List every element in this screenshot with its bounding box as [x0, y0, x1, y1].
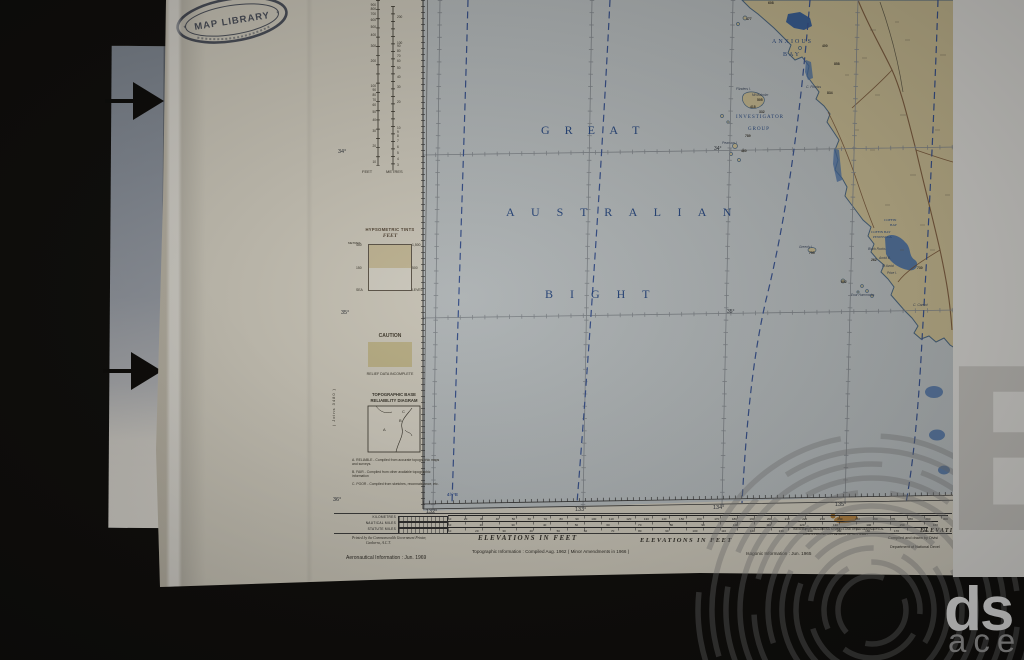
sea-label: INVESTIGATOR: [736, 115, 784, 120]
metres-tick: 50: [397, 66, 421, 70]
sea-label: BAY: [890, 224, 897, 228]
metres-tick: 8: [397, 134, 421, 138]
sea-label: PENINSULA: [873, 236, 892, 239]
heights-scale-lines: [378, 0, 393, 170]
isogonic-value-label: 4½°E: [447, 493, 458, 498]
feet-tick: 70: [352, 98, 376, 102]
place-label: Greenly I.: [799, 246, 813, 249]
aeronautical-info: Aeronautical Information : Jun. 1969: [346, 555, 426, 561]
spot-height: 460: [741, 150, 747, 153]
spot-height: 400: [822, 45, 828, 48]
degree-label: 35°: [341, 311, 349, 317]
photo-of-map: { "stamp": { "text": "MAP LIBRARY", "sid…: [0, 0, 1024, 660]
hypso-right-0: 1,500: [412, 243, 421, 247]
scalebar-nm-label: NAUTICAL MILES: [336, 521, 396, 525]
feet-tick: 300: [352, 44, 376, 48]
metres-tick: 40: [397, 75, 421, 79]
place-label: C. Carnot: [913, 304, 928, 307]
feet-tick: 90: [352, 88, 376, 92]
metres-tick: 6: [397, 145, 421, 149]
degree-label: 34°: [714, 147, 722, 152]
feet-tick: 30: [352, 129, 376, 133]
library-stamp: MAP LIBRARY * *: [174, 0, 289, 49]
reliability-title2: RELIABILITY DIAGRAM: [350, 398, 438, 403]
scalebar-sm-label: STATUTE MILES: [336, 527, 396, 531]
metres-tick: 20: [397, 100, 421, 104]
hypso-left-2: SEA: [356, 288, 363, 292]
arrow-icon: [105, 99, 135, 103]
reliability-entry: C. POOR - Compiled from sketches, reconn…: [352, 482, 440, 486]
watermark-band: B: [953, 0, 1024, 577]
feet-tick: 400: [352, 33, 376, 37]
scalebar-rule: [334, 513, 952, 514]
degree-label: 35°: [727, 310, 735, 315]
hypso-left-1: 150: [356, 266, 362, 270]
metres-tick: 5: [397, 151, 421, 155]
sea-label: COFFIN: [884, 219, 896, 223]
watermark-text-ace: ace: [948, 622, 1022, 660]
feet-tick: 60: [352, 103, 376, 107]
arrow-icon: [103, 369, 133, 373]
place-label: Pearson I.: [722, 142, 737, 145]
metres-tick: 60: [397, 59, 421, 63]
place-label: Avoid B.: [879, 257, 891, 260]
metres-tick: 3: [397, 163, 421, 167]
hypso-right-1: 500: [412, 266, 418, 270]
hypso-left-0: 450: [356, 243, 362, 247]
sea-label: COFFIN BAY: [871, 231, 891, 234]
place-label: Black Rocks: [868, 248, 886, 251]
caution-note: RELIEF DATA INCOMPLETE: [352, 372, 428, 376]
feet-tick: 20: [352, 144, 376, 148]
printer-line1: Printed by the Commonwealth Government P…: [352, 536, 426, 540]
feet-label: FEET: [362, 169, 372, 174]
stamp-star: *: [276, 11, 280, 18]
metres-tick: 7: [397, 139, 421, 143]
feet-tick: 10: [352, 160, 376, 164]
info-note1: INFORMATION REGARDING SYMBOLS AND OTHER …: [793, 527, 884, 531]
isogonic-info: Isogonic Information : Jun. 1965: [746, 551, 811, 556]
scalebar-tick: 160: [933, 523, 938, 527]
arrow-icon: [131, 352, 162, 390]
hypsometric-band-upper: [368, 244, 412, 270]
spot-height: 834: [827, 92, 833, 95]
metres-tick: 70: [397, 54, 421, 58]
sea-label: GROUP: [748, 127, 770, 132]
place-label: Flinders I.: [736, 88, 751, 91]
feet-tick: 50: [352, 110, 376, 114]
place-label: Pt Avoid: [882, 265, 894, 268]
spot-height: 418: [750, 106, 756, 109]
spot-height: 477: [746, 18, 752, 21]
place-label: Mt Malcolm: [752, 94, 768, 97]
feet-tick: 500: [352, 25, 376, 29]
spot-height: 505: [757, 99, 763, 102]
stamp-text: MAP LIBRARY: [194, 10, 271, 33]
heights-scale-feet: 9008007006005004003002001009080706050403…: [352, 0, 376, 175]
place-label: Four Hummocks: [851, 294, 874, 297]
sea-label: BAY: [783, 52, 801, 58]
degree-label: 34°: [338, 150, 346, 156]
compiled-line2: Department of National Devel: [890, 545, 940, 549]
scalebar-tick: 300: [943, 517, 948, 521]
sea-label: A U S T R A L I A N: [506, 206, 738, 218]
reliability-diagram-art: [368, 406, 420, 452]
place-label: C. Finniss: [806, 86, 821, 89]
spot-height: 262: [871, 259, 877, 262]
degree-label: 36°: [333, 498, 341, 504]
degree-label: 135°: [835, 503, 846, 509]
reliability-letter: B: [399, 419, 402, 423]
metres-tick: 90: [397, 44, 421, 48]
joins-note: ( Joins 3480 ): [331, 388, 336, 426]
compiled-line1: Compiled and drawn by Divisi: [888, 536, 938, 540]
feet-tick: 600: [352, 18, 376, 22]
degree-label: 134°: [713, 506, 724, 512]
reliability-entry: B. FAIR - Compiled from other available …: [352, 470, 440, 479]
arrow-icon: [133, 82, 164, 120]
scalebar-km-label: KILOMETRES: [336, 515, 396, 519]
caution-title: CAUTION: [360, 333, 420, 339]
reliability-letter: C: [402, 410, 405, 414]
feet-tick: 700: [352, 12, 376, 16]
reliability-letter: A: [383, 428, 386, 432]
stamp-star: *: [183, 25, 187, 32]
reliability-entry: A. RELIABLE - Compiled from accurate top…: [352, 458, 440, 467]
printer-line2: Canberra, A.C.T.: [366, 541, 391, 545]
caution-swatch: [368, 342, 412, 367]
elevations-note: ELEVATIONS IN FEET: [640, 537, 733, 544]
elevations-note: ELEVATIONS IN FEET: [478, 534, 578, 542]
spot-height: 755: [809, 252, 815, 255]
metres-tick: 30: [397, 85, 421, 89]
feet-tick: 80: [352, 93, 376, 97]
metres-label: METRES: [386, 169, 403, 174]
reliability-title1: TOPOGRAPHIC BASE: [350, 392, 438, 397]
hypsometric-band-lower: [368, 268, 412, 291]
metres-tick: 80: [397, 49, 421, 53]
sea-label: G R E A T: [541, 124, 645, 136]
topographic-info: Topographic Information : Compiled Aug. …: [472, 549, 629, 554]
spot-height: 858: [834, 63, 840, 66]
hypsometric-title: HYPSOMETRIC TINTS: [350, 227, 430, 232]
place-label: Price I.: [887, 272, 897, 275]
spot-height: 789: [745, 135, 751, 138]
hypsometric-units: FEET: [350, 233, 430, 239]
spot-height: 602: [841, 281, 847, 284]
info-note2: DATA IS PRINTED ON THE BACK OF THIS SHEE…: [803, 532, 868, 536]
feet-tick: 800: [352, 7, 376, 11]
spot-height: 608: [768, 2, 774, 5]
watermark-letter-b: B: [953, 330, 1024, 568]
sea-label: ANXIOUS: [772, 39, 813, 45]
metres-tick: 200: [397, 15, 421, 19]
spot-height: 730: [917, 267, 923, 270]
metres-tick: 4: [397, 157, 421, 161]
feet-tick: 200: [352, 59, 376, 63]
heights-scale-metres: 2001009080706050403020109876543: [397, 0, 421, 175]
reliability-entries: A. RELIABLE - Compiled from accurate top…: [352, 458, 442, 489]
feet-tick: 40: [352, 118, 376, 122]
hypso-right-2: LEVEL: [412, 288, 423, 292]
sea-label: B I G H T: [545, 288, 656, 300]
spot-height: 332: [759, 111, 765, 114]
